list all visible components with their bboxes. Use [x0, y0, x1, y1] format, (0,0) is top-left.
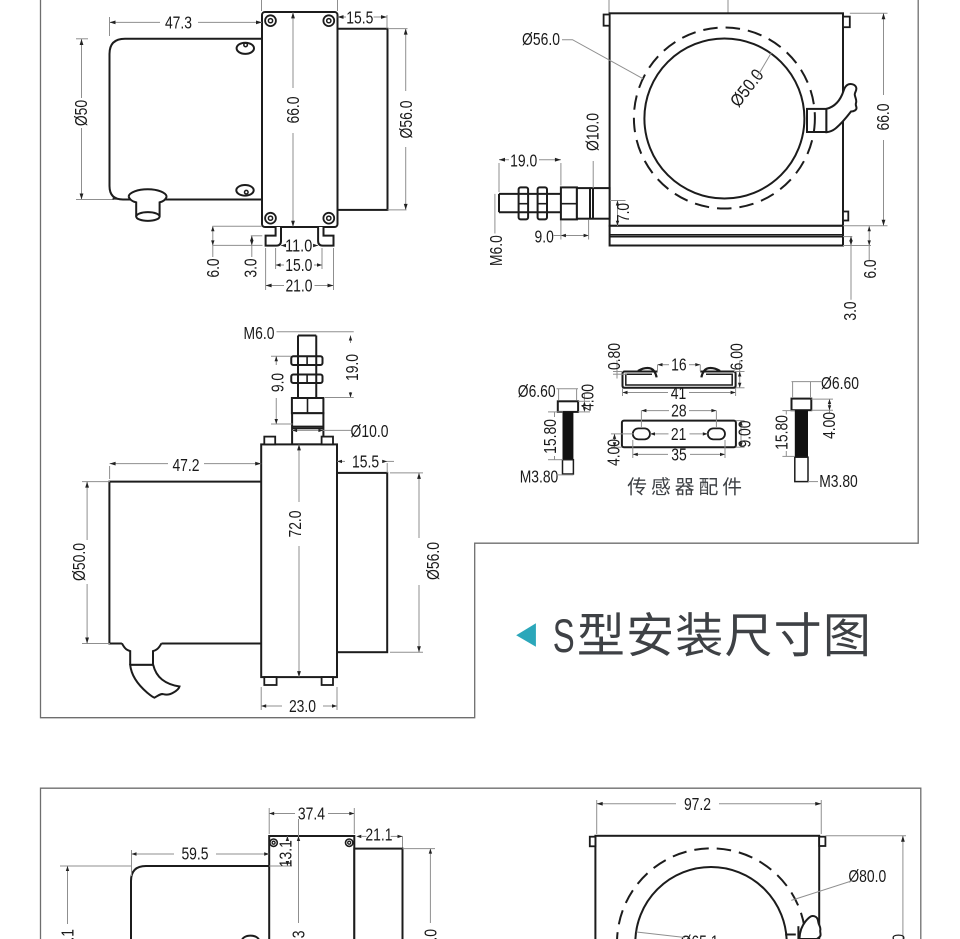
svg-text:Ø65.1: Ø65.1 [681, 931, 719, 939]
svg-text:M3.80: M3.80 [520, 466, 559, 486]
svg-text:15.5: 15.5 [346, 7, 373, 27]
svg-text:3.0: 3.0 [840, 301, 860, 320]
svg-text:M6.0: M6.0 [486, 235, 506, 266]
svg-text:15.5: 15.5 [352, 451, 379, 471]
svg-text:Ø10.0: Ø10.0 [351, 421, 389, 441]
svg-text:21.0: 21.0 [285, 276, 312, 296]
svg-text:Ø10.0: Ø10.0 [583, 113, 603, 151]
svg-text:19.0: 19.0 [342, 354, 362, 381]
svg-text:9.00: 9.00 [735, 420, 755, 447]
svg-text:15.0: 15.0 [285, 255, 312, 275]
svg-text:23.0: 23.0 [289, 696, 316, 716]
svg-text:47.3: 47.3 [165, 13, 192, 33]
svg-text:4.00: 4.00 [578, 384, 598, 411]
svg-text:6.0: 6.0 [860, 259, 880, 278]
svg-text:66.0: 66.0 [873, 103, 893, 130]
svg-text:Ø6.60: Ø6.60 [518, 381, 556, 401]
svg-text:Ø56.0: Ø56.0 [396, 100, 416, 138]
svg-text:19.0: 19.0 [510, 150, 537, 170]
svg-text:16: 16 [671, 355, 687, 375]
svg-text:9.0: 9.0 [535, 226, 554, 246]
svg-text:Ø50.0: Ø50.0 [69, 543, 89, 581]
svg-text:0.80: 0.80 [604, 343, 624, 370]
svg-text:Ø80.0: Ø80.0 [420, 929, 440, 939]
svg-text:15.80: 15.80 [540, 419, 560, 454]
svg-text:28: 28 [671, 401, 687, 421]
svg-text:Ø65.1: Ø65.1 [57, 929, 77, 939]
svg-text:15.80: 15.80 [772, 415, 792, 450]
svg-text:6.0: 6.0 [203, 258, 223, 277]
svg-text:66.0: 66.0 [283, 96, 303, 123]
svg-text:Ø56.0: Ø56.0 [423, 542, 443, 580]
svg-text:4.00: 4.00 [819, 412, 839, 439]
svg-text:6.00: 6.00 [727, 343, 747, 370]
svg-text:59.5: 59.5 [181, 844, 208, 864]
svg-text:Ø80.0: Ø80.0 [848, 866, 886, 886]
svg-text:81.3: 81.3 [289, 930, 309, 939]
svg-text:S: S [553, 609, 575, 662]
svg-text:37.4: 37.4 [298, 804, 325, 824]
svg-text:35: 35 [671, 445, 687, 465]
svg-text:Ø56.0: Ø56.0 [522, 29, 560, 49]
svg-text:3.0: 3.0 [241, 258, 261, 277]
svg-text:97.2: 97.2 [684, 794, 711, 814]
svg-text:11.0: 11.0 [285, 236, 312, 256]
svg-text:13.1: 13.1 [275, 840, 295, 867]
svg-text:72.0: 72.0 [285, 510, 305, 537]
svg-text:7.0: 7.0 [613, 203, 633, 222]
svg-text:M6.0: M6.0 [244, 323, 275, 343]
svg-text:47.2: 47.2 [172, 455, 199, 475]
svg-text:21.1: 21.1 [365, 825, 392, 845]
svg-text:Ø50: Ø50 [71, 100, 91, 126]
svg-text:9.0: 9.0 [267, 373, 287, 392]
svg-text:4.00: 4.00 [603, 439, 623, 466]
svg-text:M3.80: M3.80 [819, 471, 858, 491]
svg-text:66.0: 66.0 [889, 934, 909, 939]
svg-text:21: 21 [671, 424, 687, 444]
svg-text:Ø6.60: Ø6.60 [821, 373, 859, 393]
